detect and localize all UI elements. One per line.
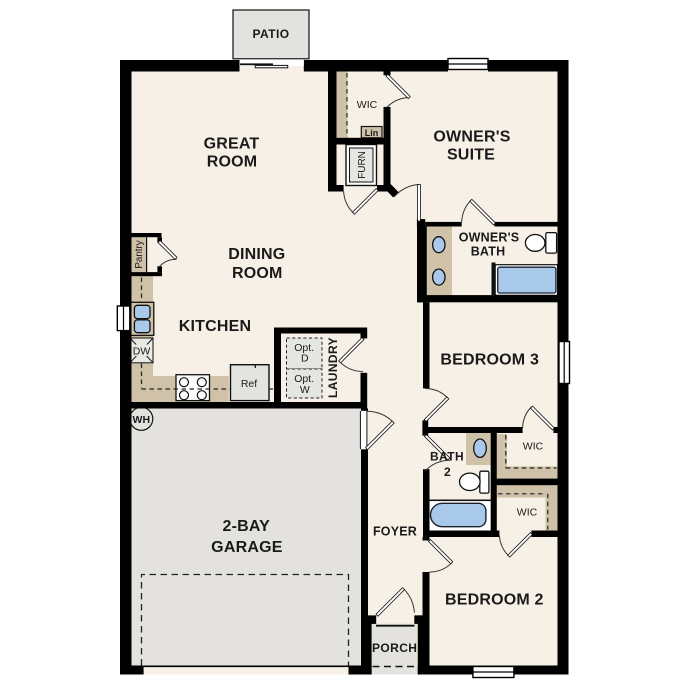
svg-text:BATH: BATH (471, 244, 506, 258)
svg-text:FURN: FURN (357, 151, 368, 179)
svg-text:DW: DW (133, 346, 151, 358)
svg-text:Lin: Lin (365, 128, 379, 138)
svg-text:LAUNDRY: LAUNDRY (326, 337, 340, 398)
svg-text:Ref: Ref (241, 378, 257, 390)
svg-text:Pantry: Pantry (134, 240, 145, 268)
svg-text:WIC: WIC (517, 507, 538, 519)
svg-text:PATIO: PATIO (253, 27, 290, 41)
svg-text:ROOM: ROOM (207, 154, 258, 171)
svg-text:2: 2 (444, 465, 451, 479)
svg-text:OWNER'S: OWNER'S (433, 128, 510, 145)
svg-text:GREAT: GREAT (204, 136, 260, 153)
svg-text:2-BAY: 2-BAY (223, 518, 271, 535)
svg-text:WIC: WIC (357, 99, 378, 111)
svg-text:WIC: WIC (523, 440, 544, 452)
svg-text:OWNER'S: OWNER'S (459, 230, 520, 244)
svg-text:BATH: BATH (430, 450, 464, 464)
svg-text:ROOM: ROOM (232, 265, 283, 282)
svg-text:DINING: DINING (228, 246, 285, 263)
svg-text:SUITE: SUITE (447, 146, 495, 163)
svg-text:PORCH: PORCH (372, 641, 417, 655)
svg-text:BEDROOM 3: BEDROOM 3 (440, 352, 539, 369)
svg-text:KITCHEN: KITCHEN (179, 318, 252, 335)
svg-text:WH: WH (133, 414, 151, 426)
svg-text:FOYER: FOYER (373, 525, 417, 539)
svg-text:BEDROOM 2: BEDROOM 2 (445, 591, 544, 608)
svg-text:D: D (301, 353, 309, 365)
svg-text:GARAGE: GARAGE (211, 539, 283, 556)
svg-text:W: W (300, 384, 310, 396)
